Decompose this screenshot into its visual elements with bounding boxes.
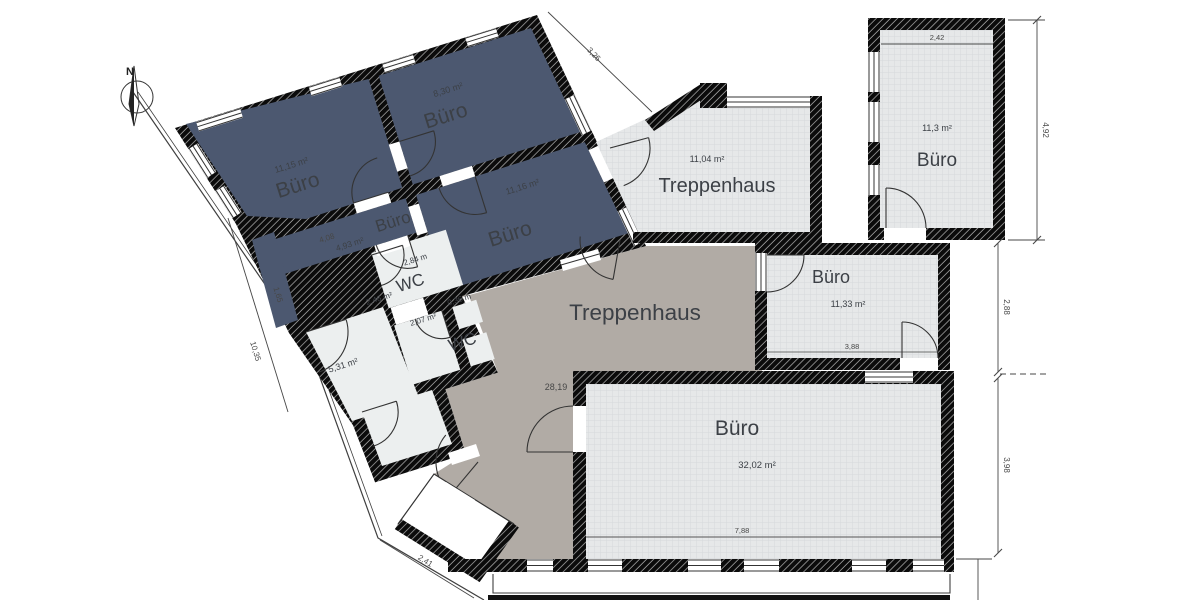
svg-text:7,88: 7,88 [735,526,750,535]
svg-text:N: N [126,66,134,78]
svg-text:11,33 m²: 11,33 m² [831,299,866,309]
svg-text:4,92: 4,92 [1041,122,1050,138]
svg-text:3,88: 3,88 [845,342,860,351]
svg-text:11,04 m²: 11,04 m² [690,154,725,164]
svg-text:Büro: Büro [715,417,759,440]
svg-text:Büro: Büro [812,267,850,287]
svg-text:3,98: 3,98 [1002,457,1011,473]
svg-text:32,02 m²: 32,02 m² [738,460,776,471]
svg-text:28,19: 28,19 [545,382,568,392]
svg-text:Büro: Büro [917,150,957,171]
svg-text:Treppenhaus: Treppenhaus [569,300,701,325]
svg-text:11,3 m²: 11,3 m² [922,123,952,133]
svg-text:Treppenhaus: Treppenhaus [658,175,775,197]
svg-text:2,42: 2,42 [930,33,945,42]
svg-text:2,88: 2,88 [1002,299,1011,315]
